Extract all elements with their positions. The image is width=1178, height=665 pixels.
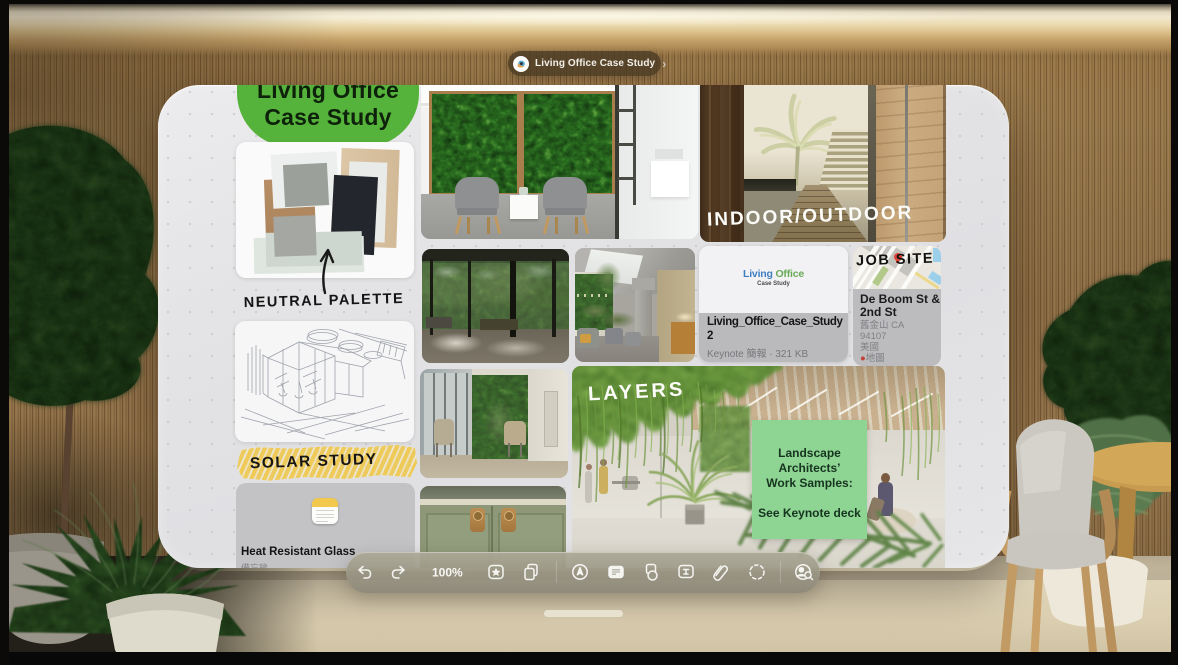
svg-text:100%: 100% (432, 566, 463, 580)
